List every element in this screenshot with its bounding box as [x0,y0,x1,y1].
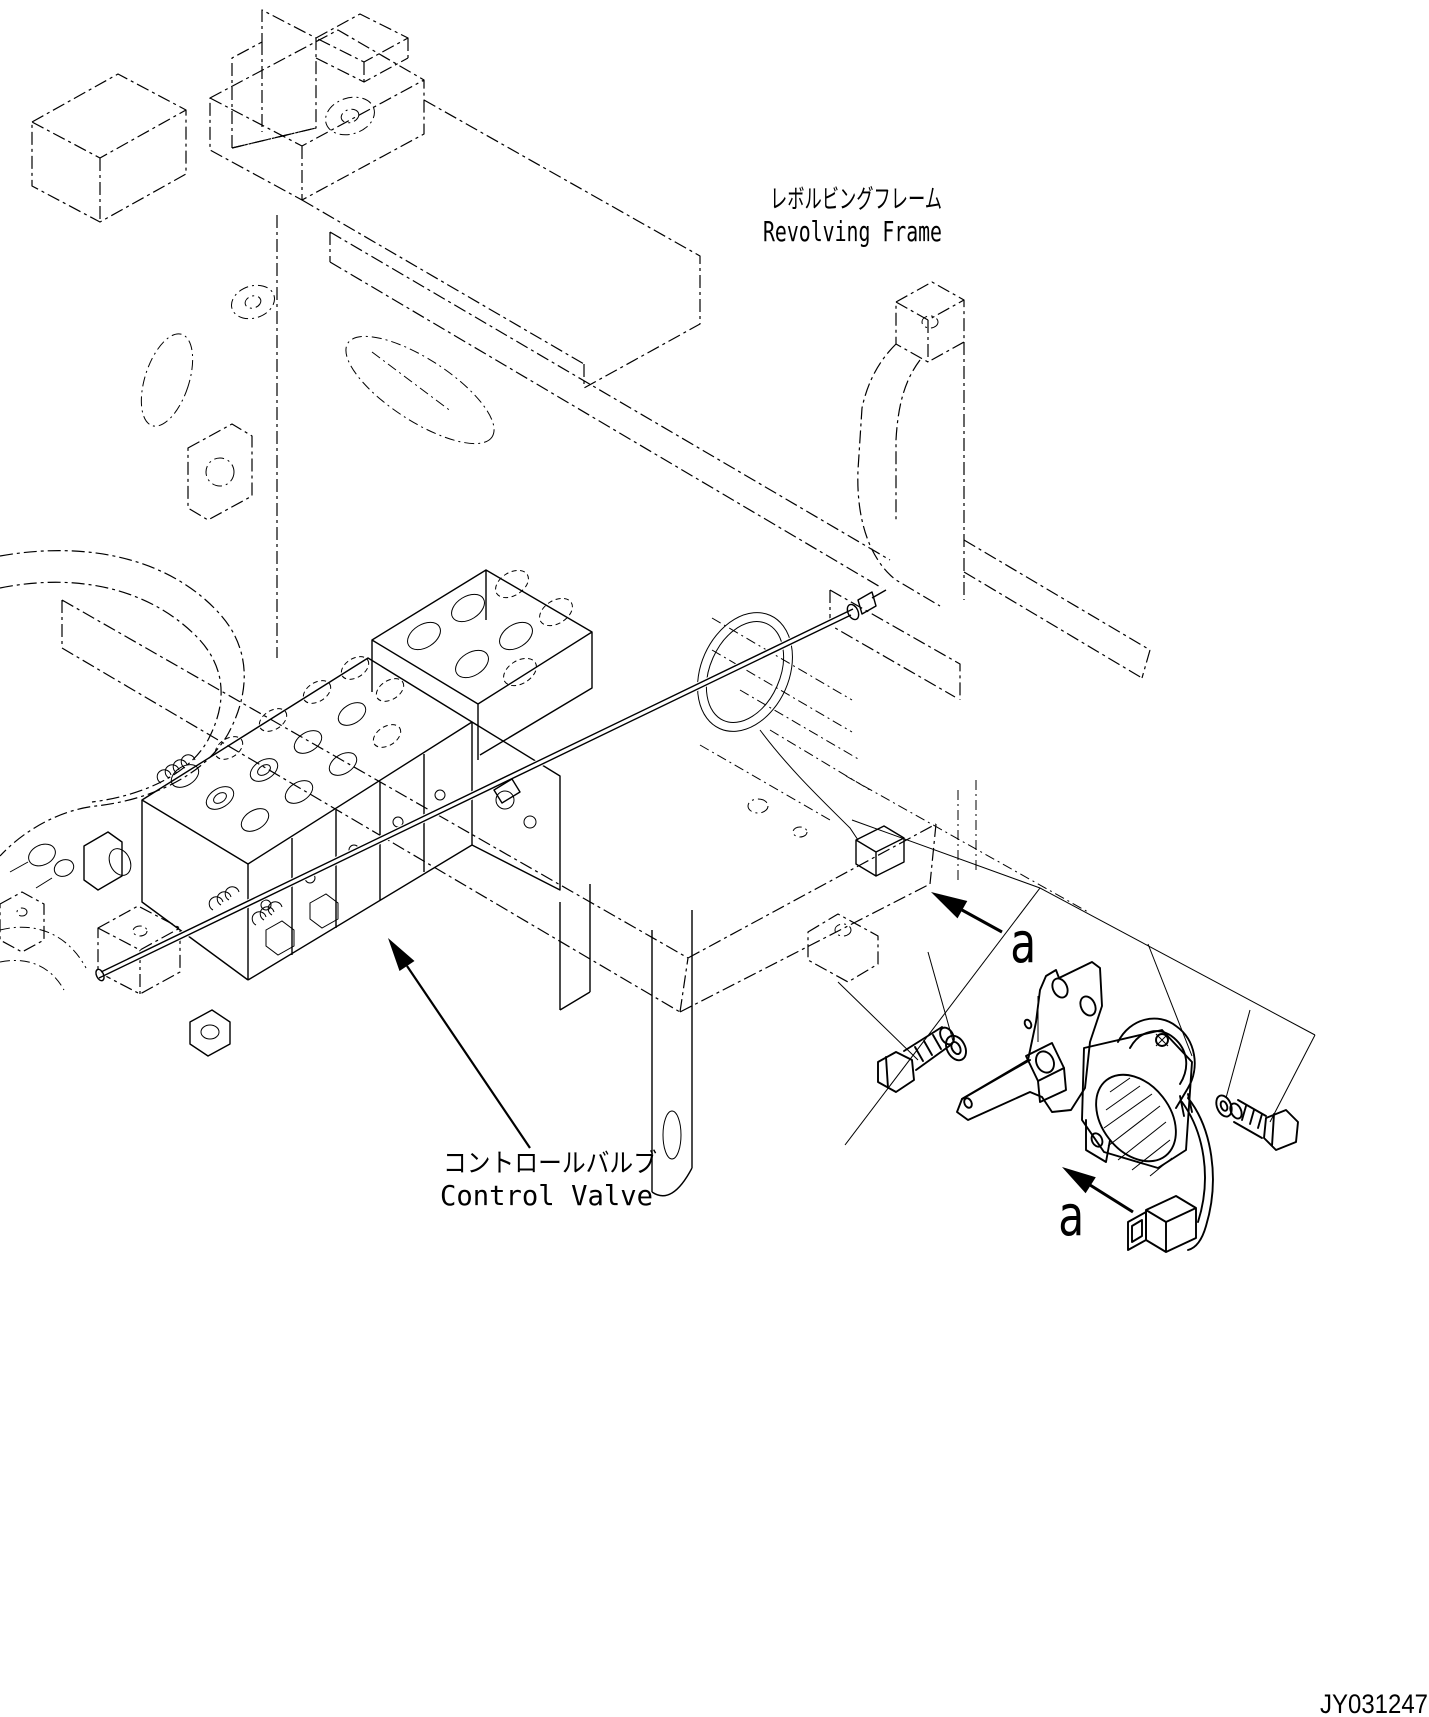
detail-parts [878,962,1298,1252]
label-control-valve-jp: コントロールバルブ [443,1149,657,1179]
horn-connector [1128,1196,1196,1252]
label-revolving-frame-jp: レボルビングフレーム [770,185,942,215]
drawing-number: JY031247 [1320,1689,1428,1717]
detail-arrow-upper [931,892,1002,932]
bolt-right [1228,1100,1298,1150]
washer-left [942,1032,970,1063]
harness-connector [856,826,904,876]
bolt-left [878,1025,957,1092]
detail-marker-upper: a [1010,911,1036,976]
leader-lines [838,820,1315,1145]
control-valve-assembly [10,565,886,1196]
valve-tie-rod [94,590,886,982]
horn-wire [1188,1098,1213,1250]
label-control-valve-en: Control Valve [440,1179,653,1212]
parts-diagram-page: レボルビングフレーム Revolving Frame コントロールバルブ Con… [0,0,1429,1717]
detail-marker-lower: a [1058,1184,1084,1249]
label-revolving-frame-en: Revolving Frame [763,215,942,248]
control-valve-arrow [388,938,530,1148]
mounting-bracket [957,962,1102,1120]
revolving-frame-outline [0,10,1150,1012]
diagram-canvas: レボルビングフレーム Revolving Frame コントロールバルブ Con… [0,0,1429,1717]
